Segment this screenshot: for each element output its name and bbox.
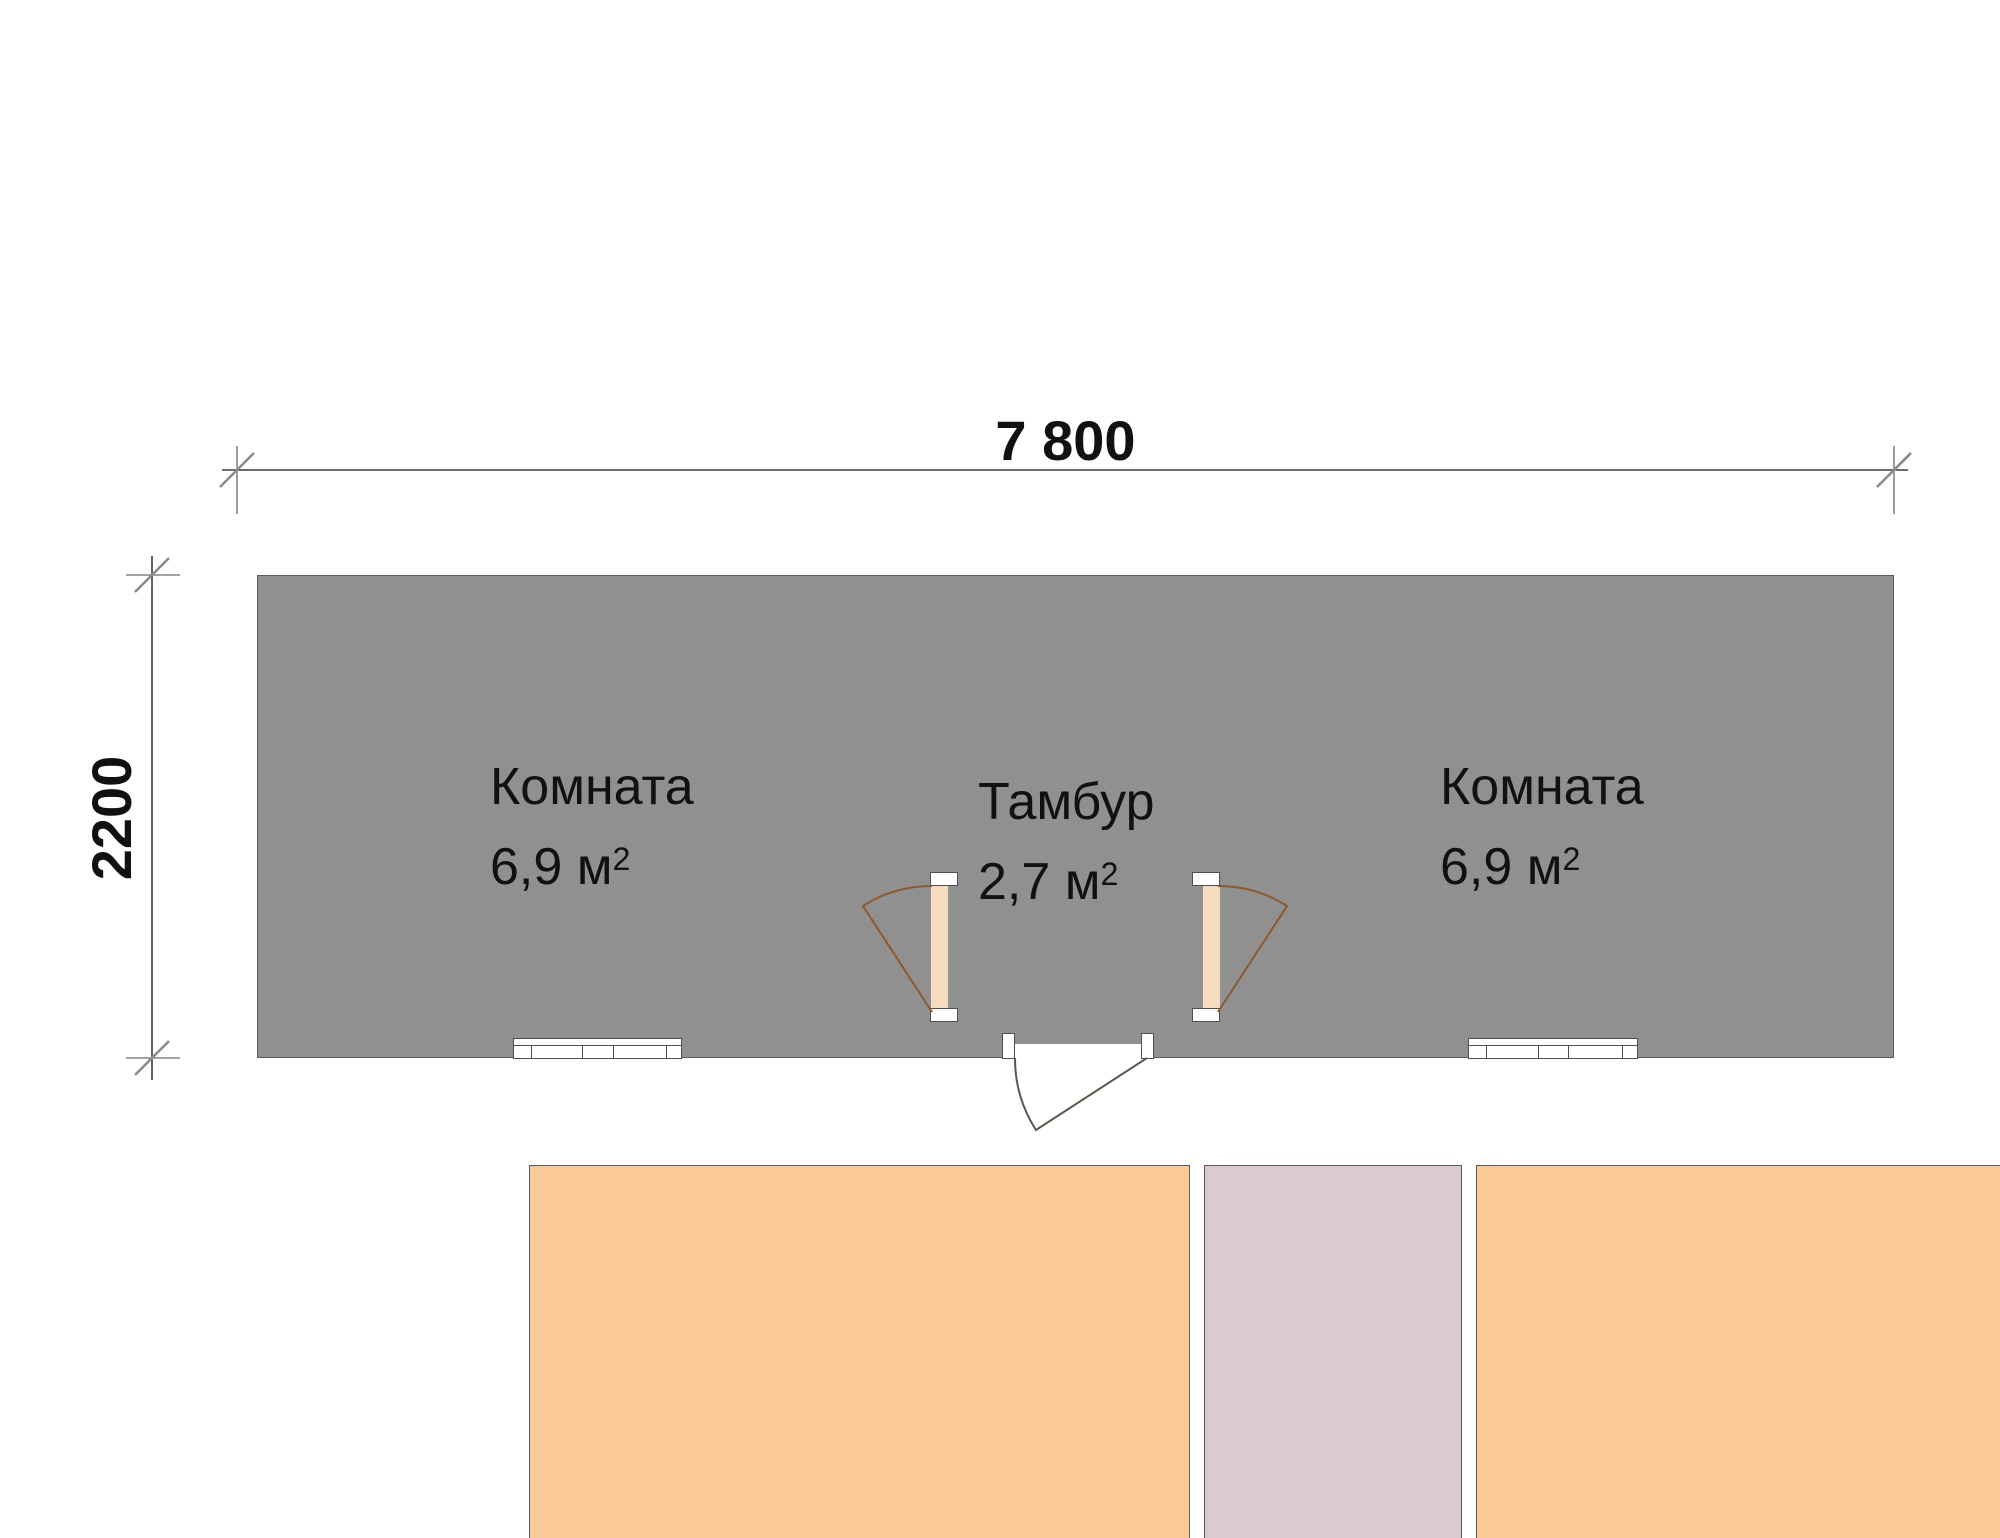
- door-jamb: [1141, 1033, 1154, 1059]
- dimension-height-label: 2200: [82, 668, 142, 968]
- doorway-entrance: [1015, 1044, 1141, 1060]
- room-tambour-area: 2,7 м2: [978, 852, 1118, 912]
- window-mullion: [1568, 1045, 1569, 1058]
- door-jamb: [930, 1008, 958, 1022]
- window-mullion: [531, 1045, 532, 1058]
- window-sill: [1469, 1045, 1637, 1046]
- dim-tick: [135, 1041, 169, 1075]
- room-right-area-value: 6,9 м: [1440, 838, 1562, 896]
- room-tambour-name: Тамбур: [978, 772, 1155, 832]
- room-right: [1476, 1165, 2000, 1538]
- window-sill: [514, 1045, 681, 1046]
- room-right-area: 6,9 м2: [1440, 837, 1580, 897]
- entrance-door-swing: [1015, 1058, 1147, 1130]
- room-tambour: [1204, 1165, 1462, 1538]
- window-mullion: [1538, 1045, 1539, 1058]
- window-left-room: [513, 1038, 682, 1059]
- room-left-name: Комната: [490, 757, 694, 817]
- window-mullion: [1486, 1045, 1487, 1058]
- window-mullion: [582, 1045, 583, 1058]
- window-mullion: [1622, 1045, 1623, 1058]
- room-left: [529, 1165, 1190, 1538]
- dim-tick: [135, 558, 169, 592]
- door-jamb: [1002, 1033, 1015, 1059]
- door-jamb: [1192, 1008, 1220, 1022]
- room-tambour-area-sup: 2: [1100, 856, 1118, 892]
- floor-plan: 7 800 2200 Комната 6,9 м2 Тамбур 2,7 м2 …: [0, 0, 2000, 1538]
- door-jamb: [1192, 872, 1220, 886]
- room-left-area-sup: 2: [612, 841, 630, 877]
- doorway-left: [931, 886, 948, 1009]
- doorway-right: [1203, 886, 1220, 1009]
- window-mullion: [613, 1045, 614, 1058]
- room-right-name: Комната: [1440, 757, 1644, 817]
- room-left-area-value: 6,9 м: [490, 838, 612, 896]
- window-right-room: [1468, 1038, 1638, 1059]
- window-mullion: [666, 1045, 667, 1058]
- dimension-width-label: 7 800: [237, 408, 1894, 473]
- room-right-area-sup: 2: [1562, 841, 1580, 877]
- room-tambour-area-value: 2,7 м: [978, 853, 1100, 911]
- door-jamb: [930, 872, 958, 886]
- room-left-area: 6,9 м2: [490, 837, 630, 897]
